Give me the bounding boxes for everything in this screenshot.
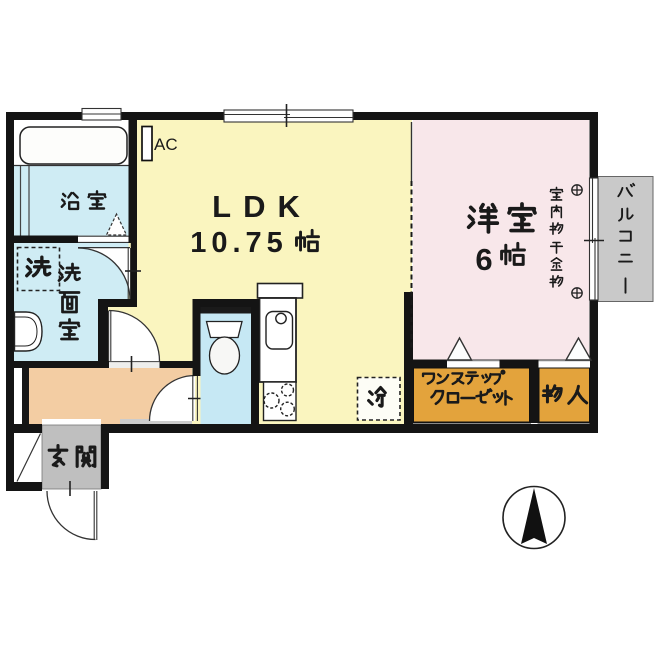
svg-text:10.75: 10.75 xyxy=(190,227,288,259)
svg-text:LDK: LDK xyxy=(212,189,312,224)
svg-text:AC: AC xyxy=(154,135,178,154)
svg-text:6: 6 xyxy=(475,242,492,277)
